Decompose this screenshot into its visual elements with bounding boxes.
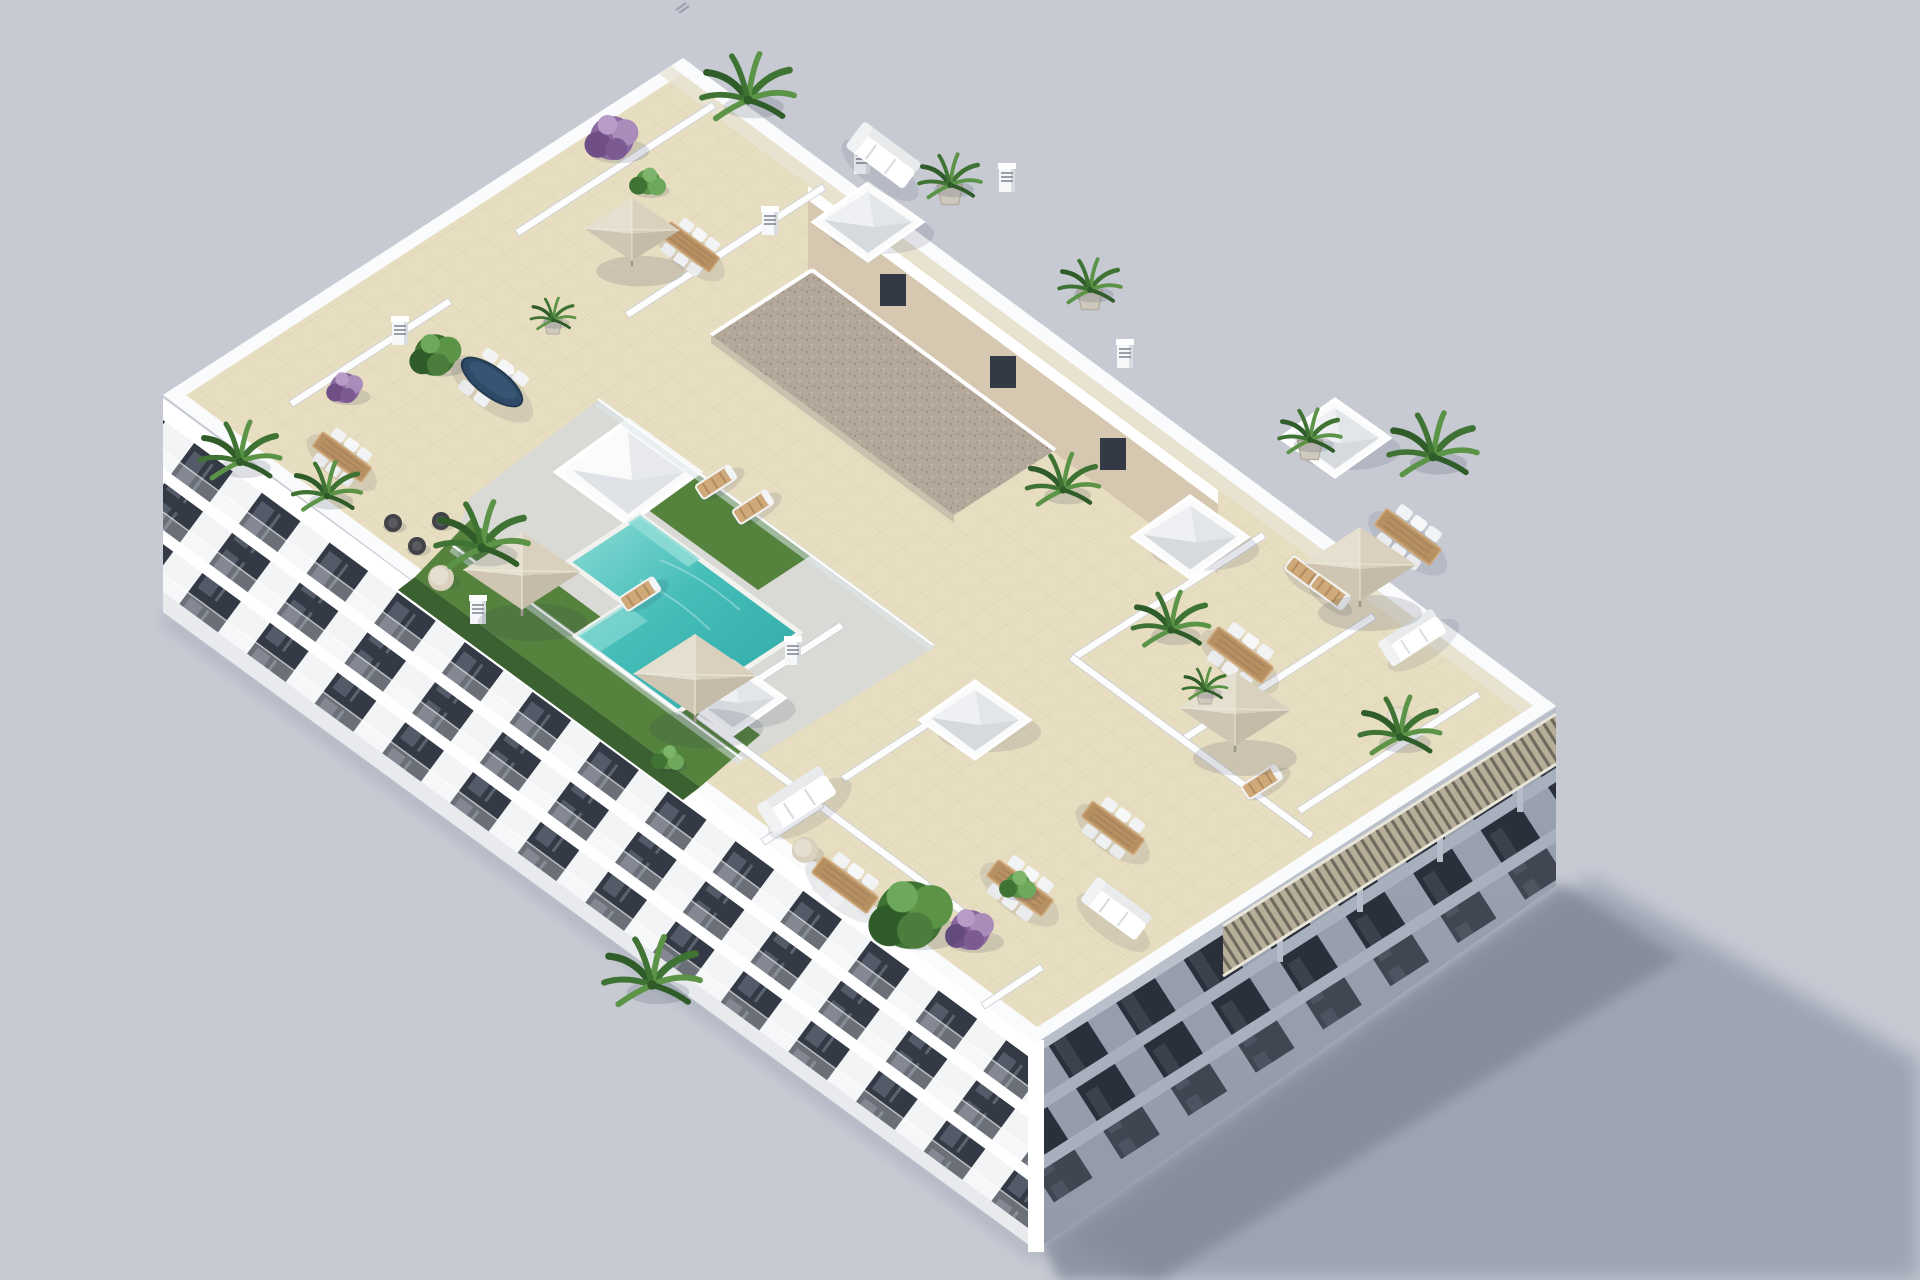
- backdrop: [0, 0, 1920, 1280]
- palm: [1027, 454, 1099, 504]
- ground: [0, 0, 1920, 1280]
- facade-southeast: [1036, 708, 1556, 1250]
- swimming-pool: [568, 515, 800, 712]
- render-canvas: Aerial 3D architectural rendering of a w…: [0, 0, 1920, 1280]
- pouf: [792, 837, 824, 863]
- chimney: [853, 145, 871, 174]
- green-tree: [409, 334, 468, 376]
- oval-dining-set: [440, 334, 550, 435]
- chimney: [761, 206, 779, 235]
- tiled-deck: [163, 58, 1556, 1043]
- cast-shadow: [1068, 878, 1920, 1280]
- palm: [702, 54, 794, 118]
- dining-set: [1066, 786, 1164, 876]
- dining-set: [1358, 492, 1462, 587]
- purple-tree: [585, 115, 650, 163]
- balcony-glass: [163, 574, 1036, 1234]
- cast-shadow-dark: [1040, 884, 1680, 1280]
- palm: [293, 462, 361, 510]
- roof-deck: [163, 54, 1556, 1043]
- parasol: [463, 532, 587, 641]
- window-row: [163, 482, 1036, 1172]
- parasol: [1179, 672, 1297, 776]
- pool-steps: [575, 604, 648, 653]
- sofa-set: [832, 118, 934, 211]
- stair-core: [711, 186, 1218, 574]
- core-window: [1100, 438, 1126, 470]
- sun-lounger: [693, 459, 749, 507]
- parasols: [463, 198, 1422, 776]
- glass-fence: [452, 399, 933, 762]
- pyramid-skylight: [681, 661, 796, 735]
- potted-palm: [919, 154, 981, 204]
- building-facades: [163, 398, 1556, 1252]
- dining-set: [646, 207, 739, 291]
- dining-set: [298, 417, 391, 501]
- gravel-roof: [711, 270, 1055, 515]
- dining-set: [795, 840, 899, 935]
- pool-deck: [435, 400, 935, 775]
- pyramid-skylights: [681, 183, 1401, 759]
- chimney: [391, 316, 409, 345]
- core-wall: [808, 200, 1218, 574]
- chimney: [784, 636, 802, 665]
- pouf: [1386, 706, 1415, 729]
- parasol: [1304, 527, 1422, 631]
- chimney: [496, 368, 514, 397]
- sofa-set: [1374, 600, 1467, 681]
- stair-skylight-wedge: [556, 420, 700, 524]
- parasol: [584, 198, 684, 286]
- sun-lounger: [730, 484, 786, 532]
- planter-pot: [1183, 668, 1227, 704]
- sun-lounger: [1239, 759, 1295, 807]
- palm: [200, 422, 280, 478]
- hedge: [398, 577, 700, 800]
- pyramid-skylight: [920, 681, 1041, 759]
- core-window: [880, 274, 906, 306]
- terrace-furniture: [298, 118, 1467, 962]
- sun-lounger: [617, 571, 673, 619]
- palm: [436, 502, 528, 566]
- palm: [1133, 592, 1209, 645]
- facade-southwest: [163, 398, 1036, 1250]
- palm: [1389, 413, 1477, 475]
- balcony-glass: [163, 512, 1036, 1172]
- potted-palm: [1279, 409, 1341, 459]
- sun-lounger: [1303, 572, 1358, 621]
- wicker-chair: [407, 537, 431, 556]
- chimney: [998, 163, 1016, 192]
- purple-tree: [326, 372, 370, 405]
- window-row-shaded: [1036, 782, 1556, 1160]
- green-tree: [868, 881, 964, 950]
- parapet-walls: [163, 58, 1556, 1043]
- window-row: [163, 420, 1036, 1110]
- wicker-chair: [383, 514, 407, 533]
- planter-pot: [531, 298, 575, 334]
- sun-lounger: [1278, 554, 1333, 603]
- window-row-shaded: [1036, 842, 1556, 1214]
- contact-shadow: [163, 608, 1038, 1266]
- pyramid-skylight: [1132, 496, 1259, 578]
- pool-area: [398, 399, 935, 800]
- pyramid-skylight: [1280, 399, 1401, 477]
- pool-shelf: [628, 515, 700, 567]
- sofa-set: [752, 756, 860, 851]
- terrace-divider-walls: [289, 102, 1481, 1009]
- bush: [629, 168, 670, 199]
- dining-set: [1190, 610, 1294, 705]
- wicker-chair: [431, 512, 455, 531]
- pergola: [1223, 714, 1556, 976]
- architectural-render: Aerial 3D architectural rendering of a w…: [0, 0, 1920, 1280]
- core-window: [990, 356, 1016, 388]
- chimney: [1116, 339, 1134, 368]
- window-row-shaded: [1036, 722, 1556, 1100]
- pergola-columns: [1280, 748, 1520, 962]
- corner-pier: [1028, 1040, 1044, 1252]
- chimney: [469, 595, 487, 624]
- palm: [1360, 697, 1440, 753]
- chimney-stacks: [391, 145, 1134, 665]
- sofa-set: [1068, 874, 1165, 963]
- balcony-glass: [163, 450, 1036, 1110]
- vegetation: [200, 54, 1477, 1004]
- bush: [999, 871, 1040, 902]
- pyramid-skylight: [813, 183, 934, 261]
- grass-area: [415, 520, 760, 787]
- purple-tree: [945, 909, 1004, 953]
- dining-set: [970, 843, 1074, 938]
- bush: [651, 745, 687, 772]
- artifact-mark: [676, 3, 689, 13]
- window-row: [163, 544, 1036, 1234]
- pouf: [428, 565, 460, 591]
- parasol: [633, 634, 763, 748]
- grass-area: [588, 432, 810, 590]
- potted-palm: [1059, 259, 1121, 309]
- palm: [604, 937, 700, 1004]
